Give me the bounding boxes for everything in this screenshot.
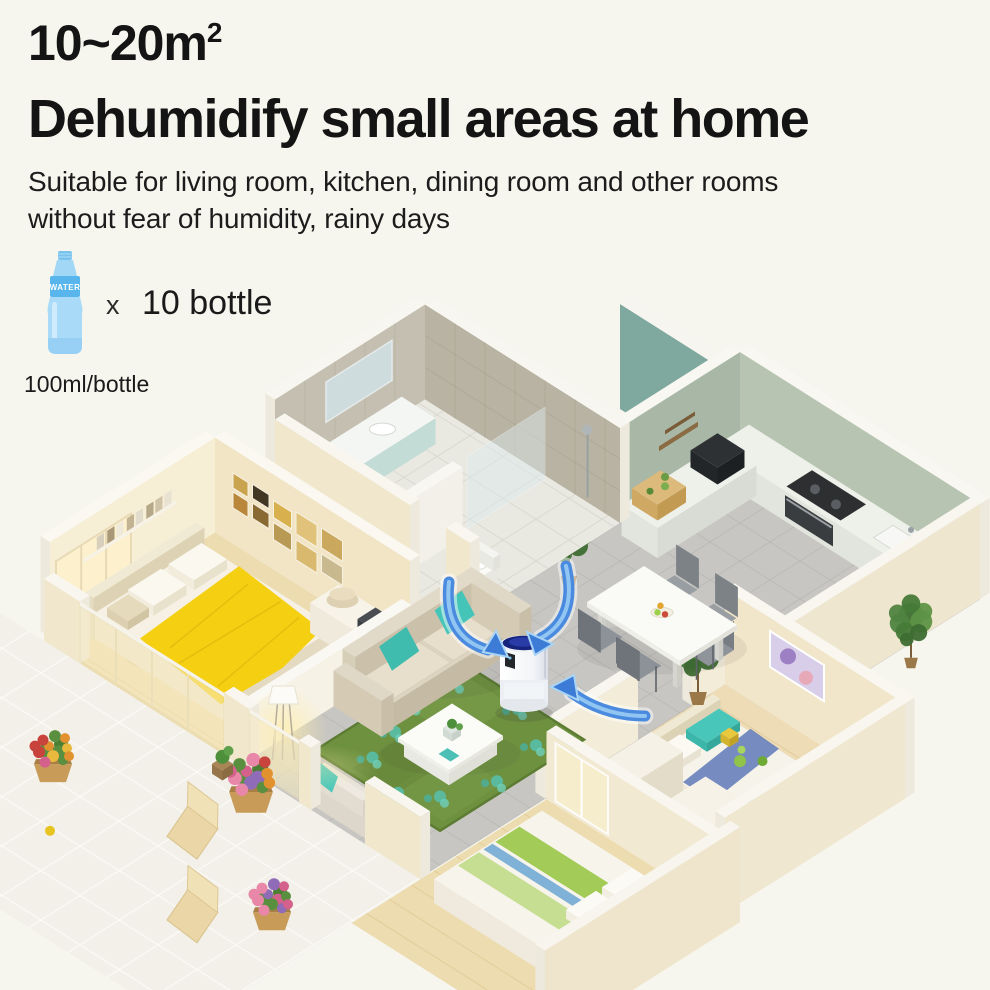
product-banner: 10~20m2 Dehumidify small areas at home S…	[0, 0, 990, 990]
floorplan-illustration	[0, 0, 990, 990]
